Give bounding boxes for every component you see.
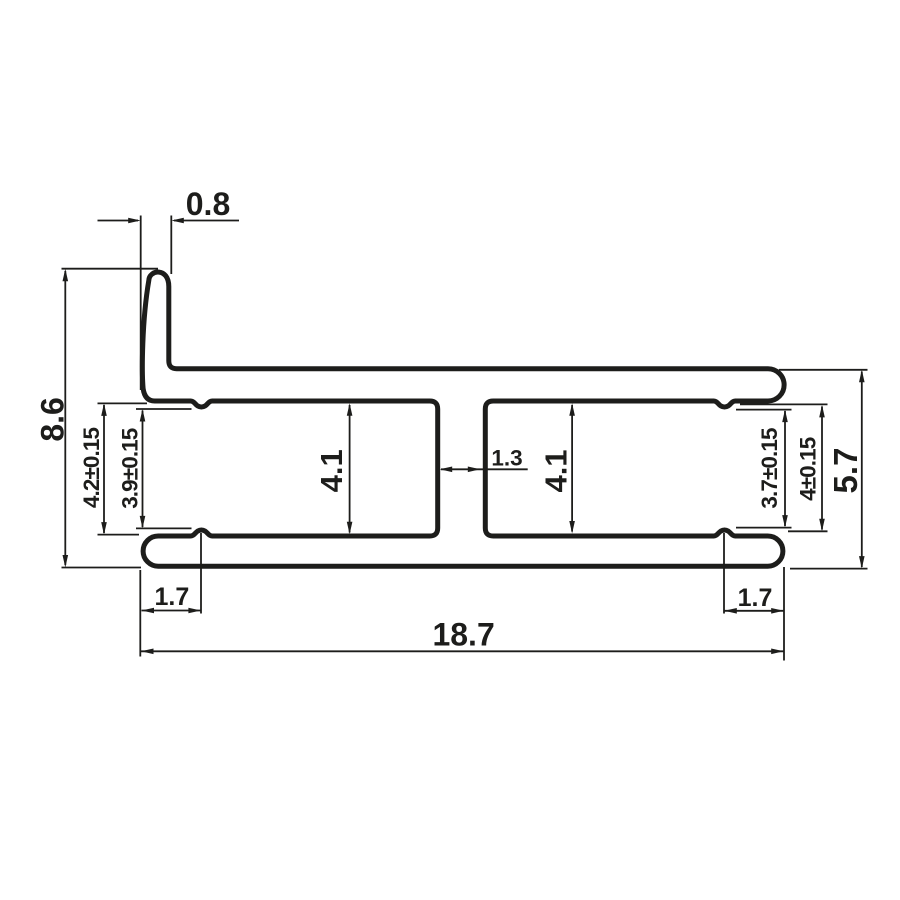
svg-text:4.1: 4.1 bbox=[538, 449, 573, 492]
svg-text:0.8: 0.8 bbox=[186, 186, 230, 222]
svg-text:3.9±0.15: 3.9±0.15 bbox=[117, 428, 142, 509]
svg-text:4±0.15: 4±0.15 bbox=[795, 437, 820, 501]
svg-text:18.7: 18.7 bbox=[432, 617, 494, 653]
svg-text:4.1: 4.1 bbox=[314, 449, 349, 492]
svg-text:3.7±0.15: 3.7±0.15 bbox=[757, 428, 782, 509]
svg-text:5.7: 5.7 bbox=[827, 448, 864, 494]
svg-text:1.7: 1.7 bbox=[738, 584, 773, 612]
svg-text:1.3: 1.3 bbox=[491, 446, 522, 471]
svg-text:8.6: 8.6 bbox=[35, 397, 71, 441]
svg-text:1.7: 1.7 bbox=[155, 583, 190, 611]
svg-text:4.2±0.15: 4.2±0.15 bbox=[79, 428, 104, 509]
